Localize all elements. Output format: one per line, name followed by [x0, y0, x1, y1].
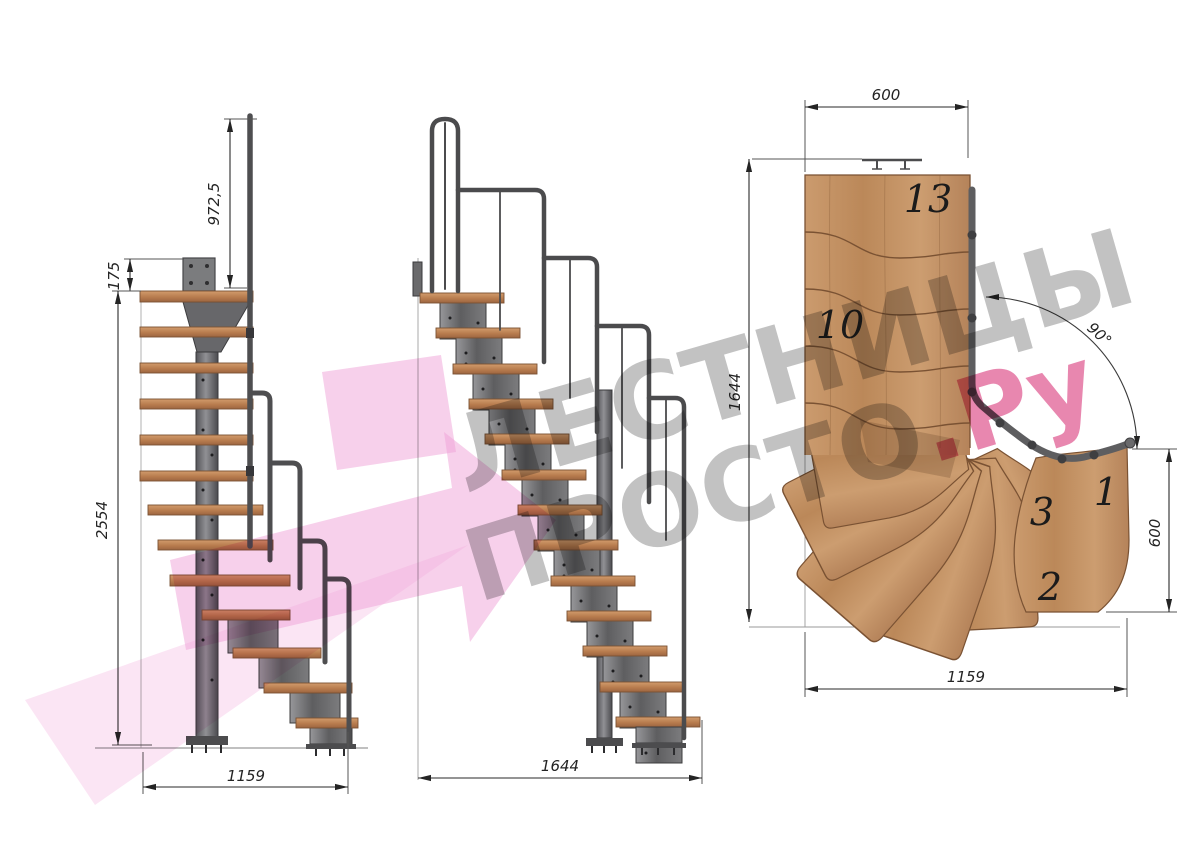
- dim-label-exit-width: 600: [1146, 519, 1164, 548]
- dim-label-bracket: 175: [105, 262, 123, 291]
- plan-step-13-label: 13: [904, 177, 952, 221]
- plan-step-10-label: 10: [816, 303, 864, 347]
- front-elevation-view: 1644: [413, 119, 702, 784]
- plan-wall-bracket: [862, 160, 922, 169]
- dim-label-rail-post: 972,5: [205, 183, 223, 226]
- staircase-drawing: 972,5 175 2554 1159: [0, 0, 1200, 849]
- side-elevation-view: 972,5 175 2554 1159: [93, 116, 368, 794]
- plan-step-3-label: 3: [1030, 490, 1054, 534]
- dim-side-total-height: 2554: [93, 291, 152, 745]
- front-handrail: [432, 119, 684, 738]
- dim-label-run: 1644: [541, 757, 579, 775]
- dim-side-bracket: 175: [105, 259, 184, 291]
- plan-step-1-label: 1: [1094, 470, 1118, 514]
- drawing-canvas: 972,5 175 2554 1159: [0, 0, 1200, 849]
- plan-handrail: [968, 190, 1136, 464]
- plan-view: 13 10 3 1 2 90° 600 1644 600: [726, 86, 1177, 697]
- dim-label-total-height: 2554: [93, 501, 111, 539]
- dim-label-plan-depth: 1644: [726, 373, 744, 411]
- dim-label-flight-width: 600: [872, 86, 901, 104]
- plan-step-2-label: 2: [1037, 565, 1062, 609]
- dim-label-plan-width: 1159: [947, 668, 985, 686]
- front-wall-bracket: [413, 262, 422, 296]
- side-lower-steps: [202, 610, 358, 756]
- dim-label-side-depth: 1159: [227, 767, 265, 785]
- dim-label-turn-angle: 90°: [1083, 319, 1115, 350]
- front-steps: [420, 293, 700, 763]
- side-wall-bracket: [183, 258, 215, 291]
